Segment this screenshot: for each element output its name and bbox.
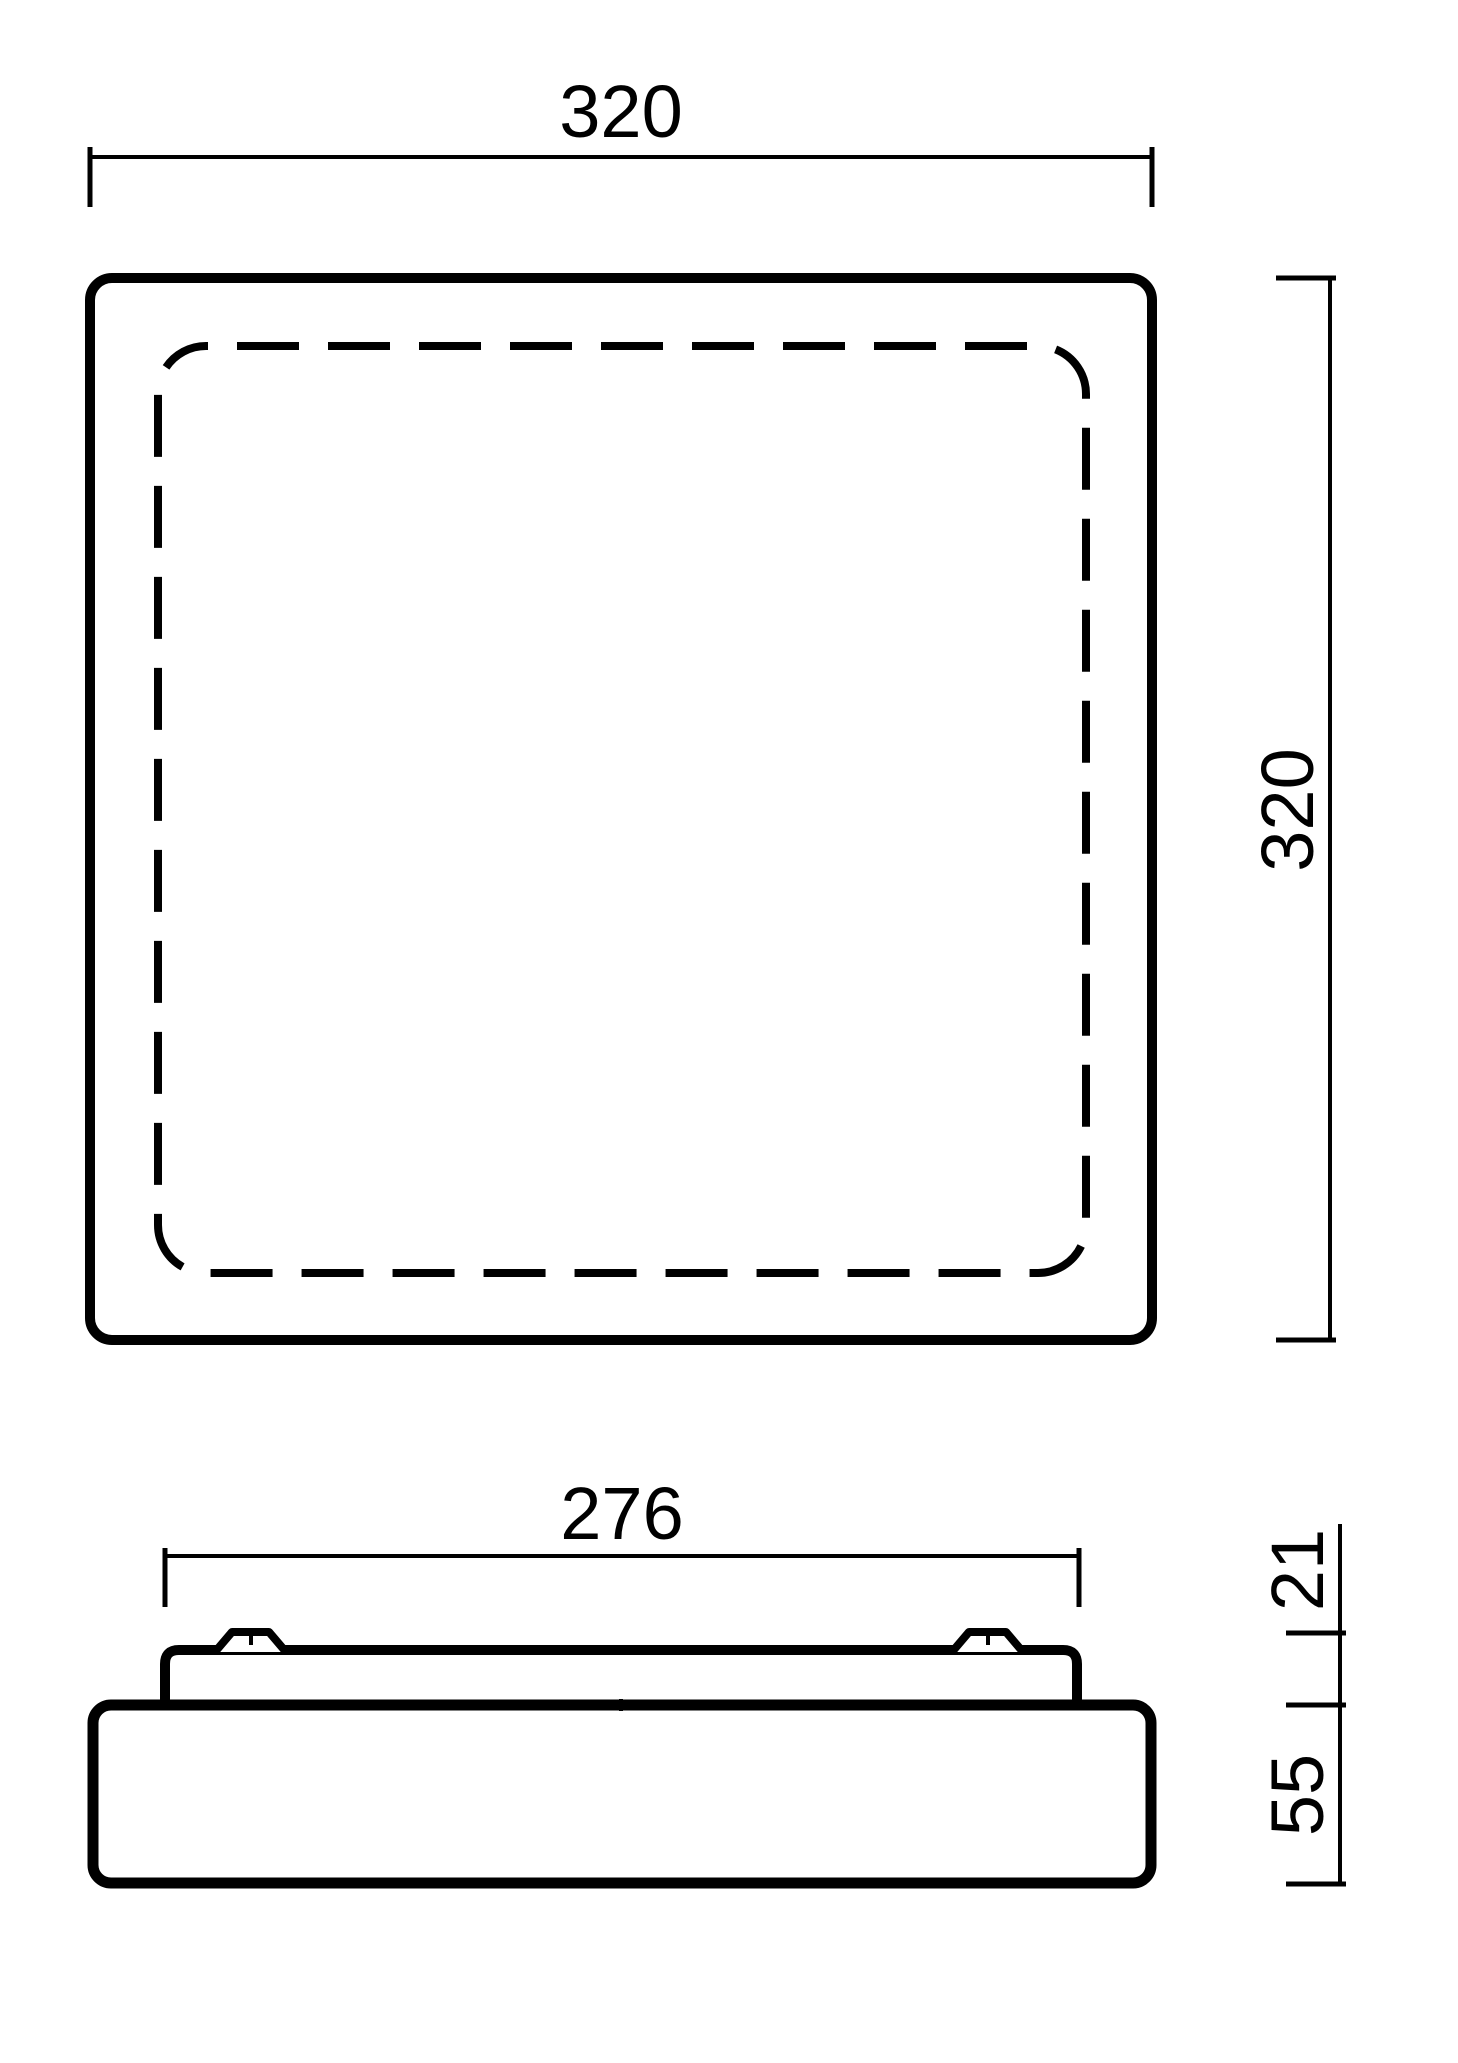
side-view: [93, 1628, 1151, 1883]
dimension-label-height: 320: [1246, 748, 1329, 871]
dimension-label-plate-width: 276: [560, 1472, 683, 1555]
dimension-top-width: 320: [90, 70, 1152, 207]
mounting-plate-profile: [165, 1650, 1077, 1706]
dimension-label-body-height: 55: [1256, 1754, 1339, 1836]
dimension-side-width: 276: [165, 1472, 1079, 1607]
luminaire-outer-outline: [90, 278, 1152, 1340]
drawing-sheet: 320 320 276: [0, 0, 1458, 2063]
top-view: [90, 278, 1152, 1340]
dimension-label-width: 320: [559, 70, 682, 153]
dimension-side-heights: 21 55: [1256, 1524, 1346, 1884]
diffuser-body-profile: [93, 1705, 1151, 1883]
dimension-right-height: 320: [1246, 278, 1336, 1340]
dimension-label-top-section: 21: [1256, 1529, 1339, 1611]
luminaire-dimension-drawing: 320 320 276: [0, 0, 1458, 2063]
